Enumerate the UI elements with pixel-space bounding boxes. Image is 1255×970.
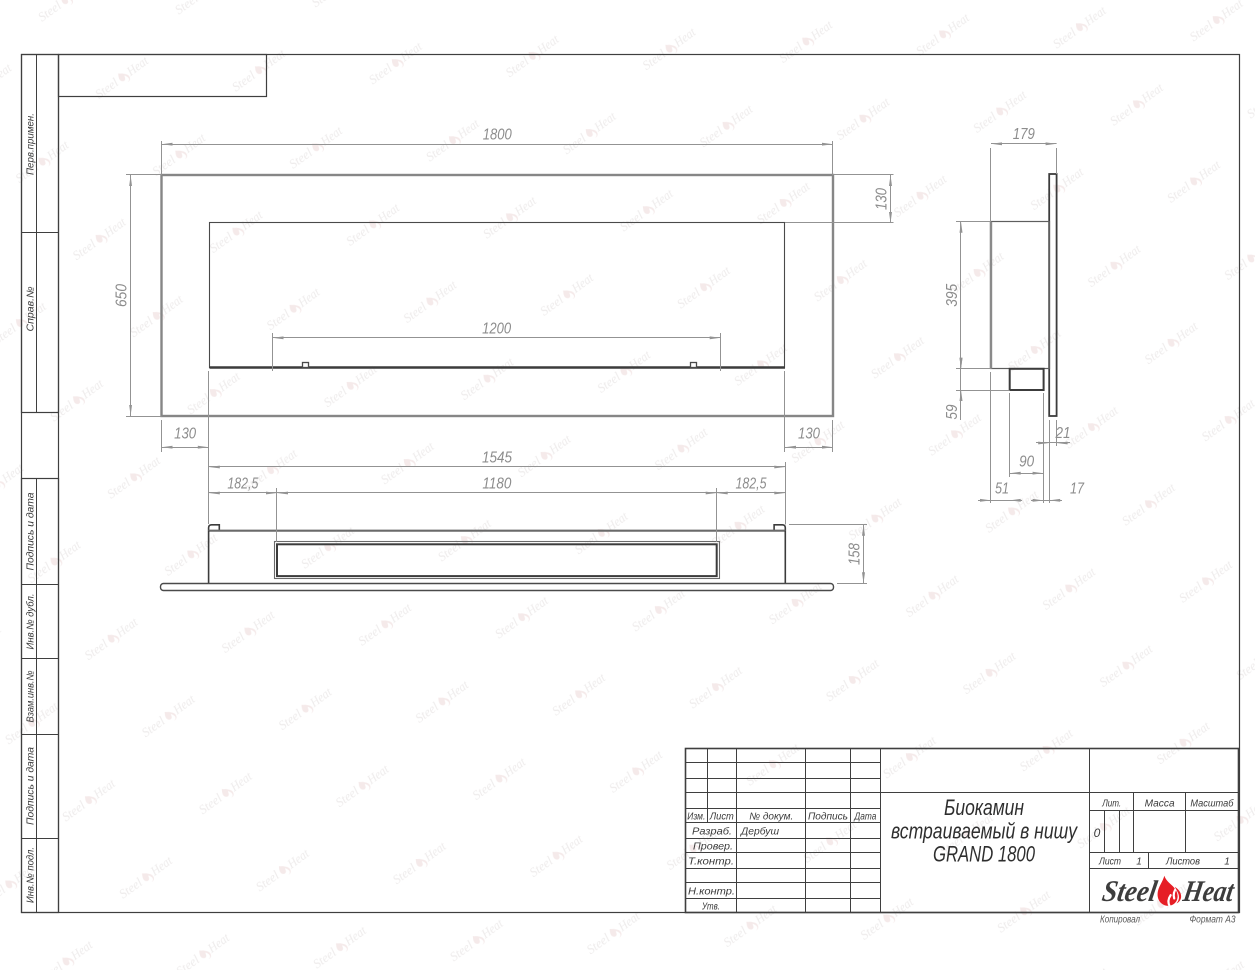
svg-text:90: 90 [1019, 454, 1034, 471]
svg-text:Т.контр.: Т.контр. [688, 857, 734, 868]
svg-text:Масштаб: Масштаб [1190, 798, 1233, 810]
svg-text:Лист: Лист [709, 812, 734, 823]
svg-text:Справ.№: Справ.№ [26, 286, 37, 331]
svg-text:Подпись и дата: Подпись и дата [26, 747, 37, 825]
svg-text:Биокамин: Биокамин [944, 795, 1024, 820]
svg-text:Лит.: Лит. [1101, 799, 1121, 810]
svg-text:Копировал: Копировал [1100, 915, 1140, 926]
svg-text:Инв.№ подл.: Инв.№ подл. [26, 847, 37, 903]
svg-text:№ докум.: № докум. [749, 812, 793, 823]
svg-text:130: 130 [798, 426, 820, 443]
svg-text:Утв.: Утв. [701, 902, 720, 913]
svg-text:1200: 1200 [482, 321, 511, 338]
svg-text:Steel: Steel [1100, 874, 1160, 908]
svg-text:1: 1 [1136, 857, 1142, 868]
svg-text:Формат A3: Формат A3 [1190, 915, 1236, 926]
svg-text:1: 1 [1224, 857, 1230, 868]
svg-text:179: 179 [1013, 126, 1035, 143]
svg-text:182,5: 182,5 [736, 476, 767, 493]
svg-text:Масса: Масса [1145, 799, 1175, 810]
svg-text:1800: 1800 [483, 127, 512, 144]
svg-text:Дата: Дата [854, 812, 877, 823]
svg-text:Провер.: Провер. [693, 842, 733, 853]
svg-text:Инв.№ дубл.: Инв.№ дубл. [25, 594, 37, 650]
svg-text:650: 650 [114, 284, 131, 307]
svg-text:Лист: Лист [1098, 857, 1121, 868]
svg-text:Перв.примен.: Перв.примен. [26, 113, 37, 175]
svg-text:59: 59 [944, 404, 961, 419]
svg-text:GRAND 1800: GRAND 1800 [933, 842, 1036, 867]
svg-text:21: 21 [1055, 425, 1071, 442]
svg-text:Взам.инв.№: Взам.инв.№ [26, 670, 37, 722]
svg-text:Н.контр.: Н.контр. [688, 887, 735, 898]
svg-text:130: 130 [874, 188, 891, 210]
svg-text:Подпись: Подпись [808, 812, 848, 823]
svg-text:158: 158 [847, 543, 864, 565]
svg-text:Разраб.: Разраб. [692, 826, 732, 838]
svg-text:1545: 1545 [482, 450, 512, 467]
svg-text:130: 130 [174, 426, 196, 443]
svg-text:Изм.: Изм. [687, 812, 705, 823]
svg-text:Листов: Листов [1165, 857, 1200, 868]
svg-text:0: 0 [1094, 826, 1101, 840]
svg-text:395: 395 [944, 284, 961, 307]
svg-text:Подпись и дата: Подпись и дата [26, 492, 37, 570]
svg-text:1180: 1180 [482, 476, 511, 493]
svg-text:Heat: Heat [1180, 874, 1238, 908]
svg-text:182,5: 182,5 [227, 476, 258, 493]
svg-text:51: 51 [995, 481, 1009, 498]
svg-text:встраиваемый в нишу: встраиваемый в нишу [891, 819, 1079, 844]
svg-text:Дербуш: Дербуш [740, 826, 780, 838]
svg-text:17: 17 [1070, 481, 1085, 498]
